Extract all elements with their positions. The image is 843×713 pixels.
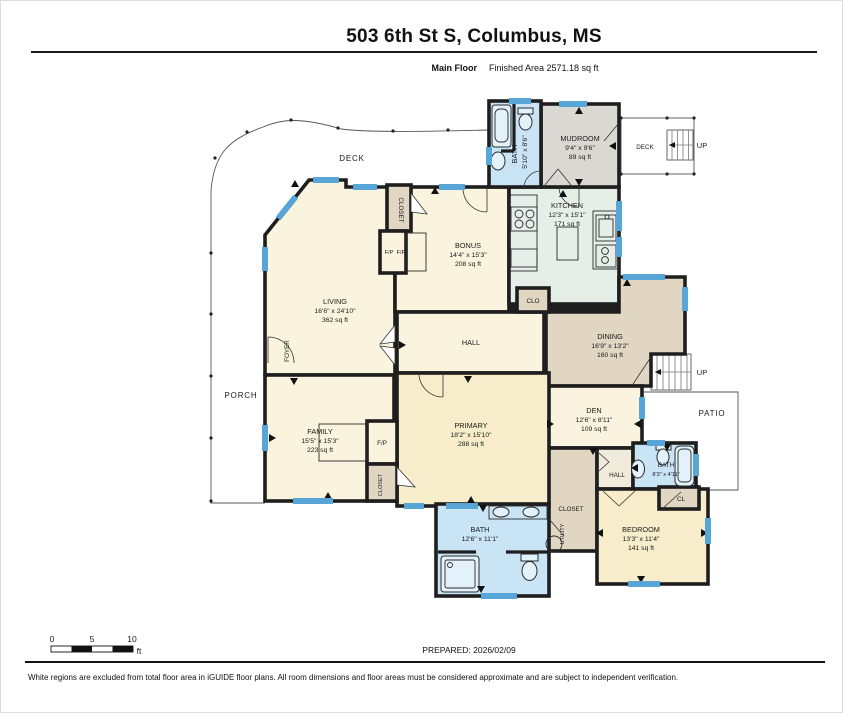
hall-label: HALL xyxy=(462,338,480,347)
bath-small-dims: 8'3" x 4'11" xyxy=(652,472,679,478)
bath-main-dims: 12'6" x 11'1" xyxy=(462,536,499,543)
kitchen-area: 171 sq ft xyxy=(554,221,580,228)
living-dims: 16'6" x 24'10" xyxy=(314,308,356,315)
scale-bar-segment xyxy=(113,646,134,652)
window-marker xyxy=(628,581,660,587)
bedroom-dims: 13'3" x 11'4" xyxy=(623,536,660,543)
interior-stairs xyxy=(651,354,691,390)
door-opening-arrow xyxy=(291,180,299,187)
stair-direction-arrow xyxy=(655,369,661,375)
window-marker xyxy=(481,593,517,599)
window-marker xyxy=(647,440,665,446)
deck-stairs xyxy=(667,130,693,160)
bath-small-label: BATH xyxy=(658,462,675,469)
bonus-dims: 14'4" x 15'3" xyxy=(449,252,487,259)
kitchen-dims: 12'3" x 15'1" xyxy=(548,212,586,219)
room-hall-small xyxy=(597,448,633,489)
scale-bar-segment xyxy=(72,646,93,652)
foyer-label: FOYER xyxy=(284,340,291,362)
primary-dims: 18'2" x 15'10" xyxy=(450,432,492,439)
family-area: 223 sq ft xyxy=(307,447,333,454)
window-marker xyxy=(693,454,699,476)
primary-label: PRIMARY xyxy=(454,421,487,430)
scale-bar: 0 5 10 ft xyxy=(50,634,142,656)
window-marker xyxy=(616,237,622,257)
window-marker xyxy=(616,201,622,231)
bathtub-top xyxy=(492,105,511,147)
rooms xyxy=(265,101,708,596)
room-closet-utility xyxy=(546,448,597,551)
bath-main-label: BATH xyxy=(471,525,490,534)
family-label: FAMILY xyxy=(307,427,333,436)
window-marker xyxy=(353,184,377,190)
up-stairs-label: UP xyxy=(697,368,707,377)
bathtub-small-bath xyxy=(675,446,694,486)
bedroom-area: 141 sq ft xyxy=(628,545,654,552)
scale-unit-label: ft xyxy=(137,646,142,656)
hall-small-label: HALL xyxy=(609,472,625,479)
clo-label: CLO xyxy=(527,298,540,305)
cl-label: CL xyxy=(677,496,686,503)
mudroom-area: 89 sq ft xyxy=(569,154,591,161)
window-marker xyxy=(313,177,339,183)
footer-divider xyxy=(25,661,825,663)
scale-tick-5: 5 xyxy=(90,634,95,644)
fireplace-family-label: F/P xyxy=(377,440,387,447)
kitchen-label: KITCHEN xyxy=(551,201,583,210)
dining-dims: 16'9" x 13'2" xyxy=(591,343,629,350)
prepared-date: PREPARED: 2026/02/09 xyxy=(349,645,589,655)
window-marker xyxy=(509,98,531,104)
disclaimer-text: White regions are excluded from total fl… xyxy=(28,673,818,682)
deck-small-label: DECK xyxy=(636,144,654,151)
fireplace-bonus-label: F/P xyxy=(397,250,406,256)
window-marker xyxy=(486,147,492,165)
window-marker xyxy=(293,498,333,504)
window-marker xyxy=(262,425,268,451)
room-primary xyxy=(397,373,549,506)
family-dims: 15'5" x 15'3" xyxy=(301,438,339,445)
floor-plan-drawing: LIVING 16'6" x 24'10" 362 sq ft BONUS 14… xyxy=(1,1,843,713)
bonus-area: 208 sq ft xyxy=(455,261,481,268)
window-marker xyxy=(682,287,688,311)
window-marker xyxy=(559,101,587,107)
floor-plan-page: 503 6th St S, Columbus, MS Main FloorFin… xyxy=(0,0,843,713)
window-marker xyxy=(404,503,424,509)
toilet-main-bath xyxy=(521,554,538,581)
window-marker xyxy=(446,503,478,509)
den-dims: 12'6" x 8'11" xyxy=(576,417,613,424)
deck-large-label: DECK xyxy=(339,154,364,163)
primary-area: 288 sq ft xyxy=(458,441,484,448)
living-label: LIVING xyxy=(323,297,347,306)
mudroom-label: MUDROOM xyxy=(560,134,599,143)
dining-label: DINING xyxy=(597,332,623,341)
den-area: 109 sq ft xyxy=(581,426,607,433)
fireplace-living-label: F/P xyxy=(385,250,394,256)
porch-label: PORCH xyxy=(225,391,258,400)
patio-label: PATIO xyxy=(699,409,726,418)
dining-area: 160 sq ft xyxy=(597,352,623,359)
small-deck-posts xyxy=(619,116,695,175)
bedroom-label: BEDROOM xyxy=(622,525,660,534)
sink-top-bath xyxy=(491,152,505,170)
window-marker xyxy=(705,518,711,544)
bath-top-label: BATH xyxy=(510,145,519,164)
den-label: DEN xyxy=(586,406,601,415)
toilet-top xyxy=(518,108,533,130)
window-marker xyxy=(623,274,665,280)
closet-utility-label: CLOSET xyxy=(558,506,583,513)
scale-tick-0: 0 xyxy=(50,634,55,644)
bath-top-dims: 5'10" x 8'6" xyxy=(522,135,529,169)
utility-label: UTILITY xyxy=(560,523,566,544)
window-marker xyxy=(262,247,268,271)
window-marker xyxy=(639,397,645,419)
living-area: 362 sq ft xyxy=(322,317,348,324)
shower-main-bath xyxy=(441,556,479,592)
up-deck-label: UP xyxy=(697,141,707,150)
bonus-label: BONUS xyxy=(455,241,481,250)
window-marker xyxy=(439,184,465,190)
mudroom-dims: 9'4" x 9'6" xyxy=(565,145,595,152)
closet-family-label: CLOSET xyxy=(378,473,384,496)
closet-living-label: CLOSET xyxy=(397,197,404,222)
scale-tick-10: 10 xyxy=(127,634,137,644)
